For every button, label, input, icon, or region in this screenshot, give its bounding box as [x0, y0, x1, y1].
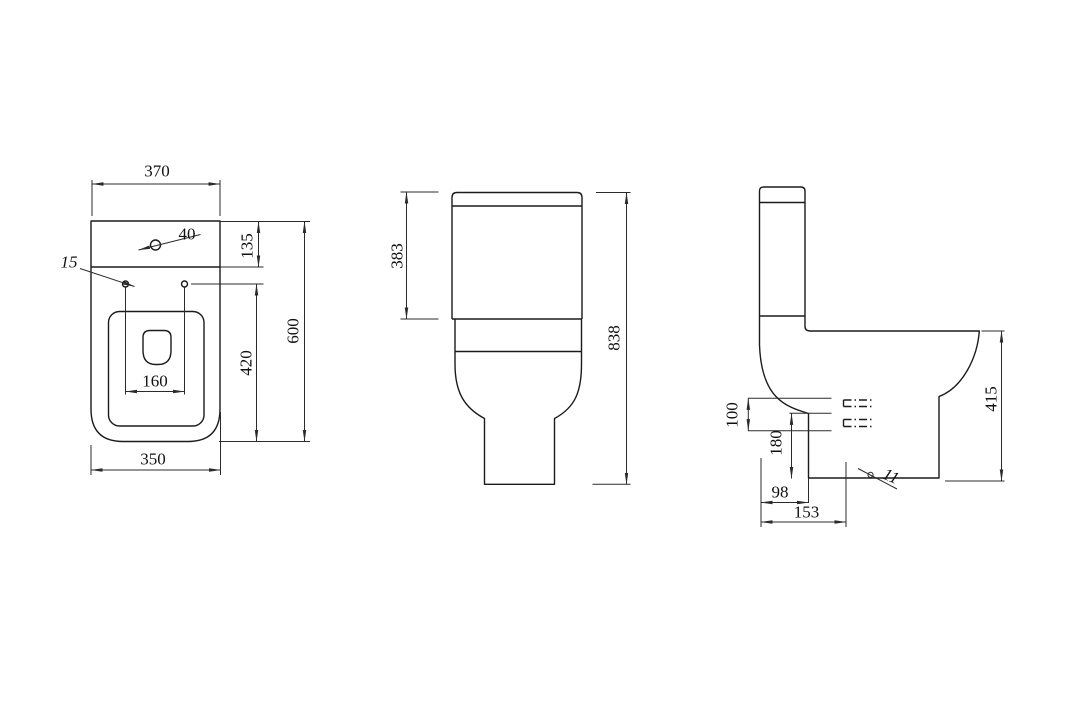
side-view-outline	[760, 187, 980, 478]
dim-label-98: 98	[772, 483, 789, 500]
dim-label-350: 350	[140, 451, 166, 468]
dim-label-153: 153	[794, 503, 820, 520]
dim-label-370: 370	[144, 163, 170, 180]
dim-label-15: 15	[61, 253, 78, 270]
dim-label-135: 135	[239, 233, 256, 259]
drawing-svg	[0, 0, 1072, 720]
dim-label-838: 838	[606, 325, 623, 351]
seat-ring	[109, 312, 205, 427]
dim-label-160: 160	[142, 373, 168, 390]
dim-label-180: 180	[768, 430, 785, 456]
water-spot	[143, 331, 171, 365]
dim-label-100: 100	[723, 402, 740, 428]
front-view-outline	[452, 193, 582, 485]
top-view-outline	[91, 221, 220, 442]
dim-label-40: 40	[179, 225, 196, 242]
dim-label-420: 420	[237, 350, 254, 376]
front-view-dimensions	[401, 192, 631, 484]
seat-fixing-hole-right	[182, 281, 188, 287]
leader-15	[80, 269, 135, 287]
dim-label-600: 600	[285, 318, 302, 344]
dim-label-383: 383	[388, 243, 405, 269]
dim-label-415: 415	[983, 386, 1000, 412]
technical-drawing-canvas: 370 40 15 135 600 420 160 350 383 838 10…	[0, 0, 1072, 720]
